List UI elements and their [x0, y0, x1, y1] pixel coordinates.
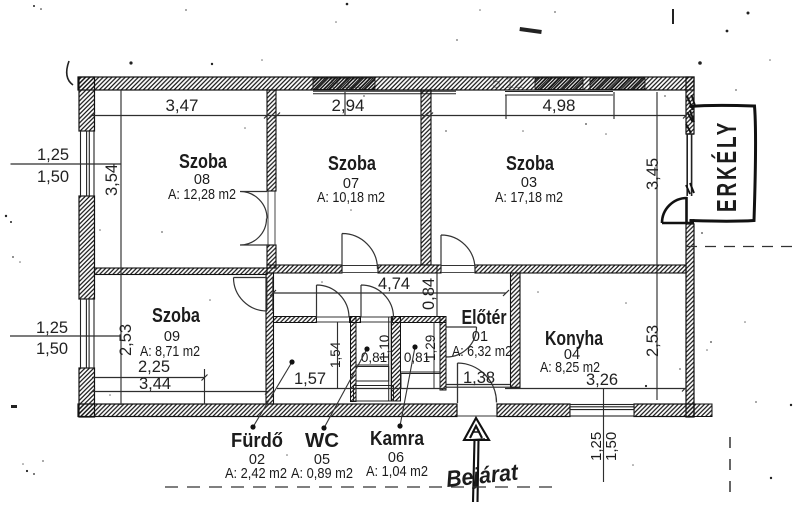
svg-text:3,54: 3,54	[103, 164, 121, 196]
svg-text:1,25: 1,25	[37, 146, 69, 164]
svg-text:1,29: 1,29	[423, 335, 438, 361]
svg-text:Szoba: Szoba	[506, 153, 555, 175]
svg-text:1,25: 1,25	[36, 319, 68, 337]
svg-text:A: 17,18 m2: A: 17,18 m2	[495, 189, 563, 206]
svg-text:3,45: 3,45	[644, 158, 662, 190]
svg-text:2,53: 2,53	[644, 325, 662, 357]
svg-text:A: 6,32 m2: A: 6,32 m2	[452, 343, 512, 360]
svg-text:3,44: 3,44	[139, 375, 171, 393]
svg-text:A: 10,18 m2: A: 10,18 m2	[317, 189, 385, 206]
svg-text:A: 8,25 m2: A: 8,25 m2	[540, 359, 600, 376]
svg-text:Szoba: Szoba	[152, 305, 201, 327]
svg-text:Kamra: Kamra	[370, 428, 425, 450]
svg-text:WC: WC	[305, 430, 339, 452]
svg-text:1,54: 1,54	[328, 341, 343, 368]
svg-text:Szoba: Szoba	[328, 153, 377, 175]
svg-text:A: 2,42 m2: A: 2,42 m2	[225, 465, 287, 482]
svg-text:4,74: 4,74	[378, 275, 410, 293]
svg-text:Szoba: Szoba	[179, 151, 228, 173]
svg-text:2,94: 2,94	[332, 97, 365, 115]
svg-text:Fürdő: Fürdő	[231, 430, 283, 452]
svg-text:ERKÉLY: ERKÉLY	[710, 120, 743, 212]
svg-text:A: 1,04 m2: A: 1,04 m2	[366, 463, 428, 480]
svg-text:Előtér: Előtér	[462, 307, 507, 329]
svg-text:2,53: 2,53	[117, 324, 135, 356]
svg-text:1,57: 1,57	[294, 370, 326, 388]
svg-text:1,50: 1,50	[37, 168, 69, 186]
svg-text:1,50: 1,50	[603, 432, 620, 461]
svg-text:1,10: 1,10	[377, 335, 392, 361]
svg-text:9.12: 9.12	[330, 75, 361, 92]
svg-text:3,47: 3,47	[166, 97, 199, 115]
svg-text:A: 0,89 m2: A: 0,89 m2	[291, 465, 353, 482]
svg-text:1,50: 1,50	[36, 340, 68, 358]
svg-text:5.12: 5.12	[492, 75, 523, 92]
svg-text:4,98: 4,98	[543, 97, 576, 115]
svg-text:A: 8,71 m2: A: 8,71 m2	[140, 343, 200, 360]
svg-text:2,25: 2,25	[138, 358, 170, 376]
svg-text:A: 12,28 m2: A: 12,28 m2	[168, 186, 236, 203]
svg-text:0,84: 0,84	[420, 278, 438, 310]
